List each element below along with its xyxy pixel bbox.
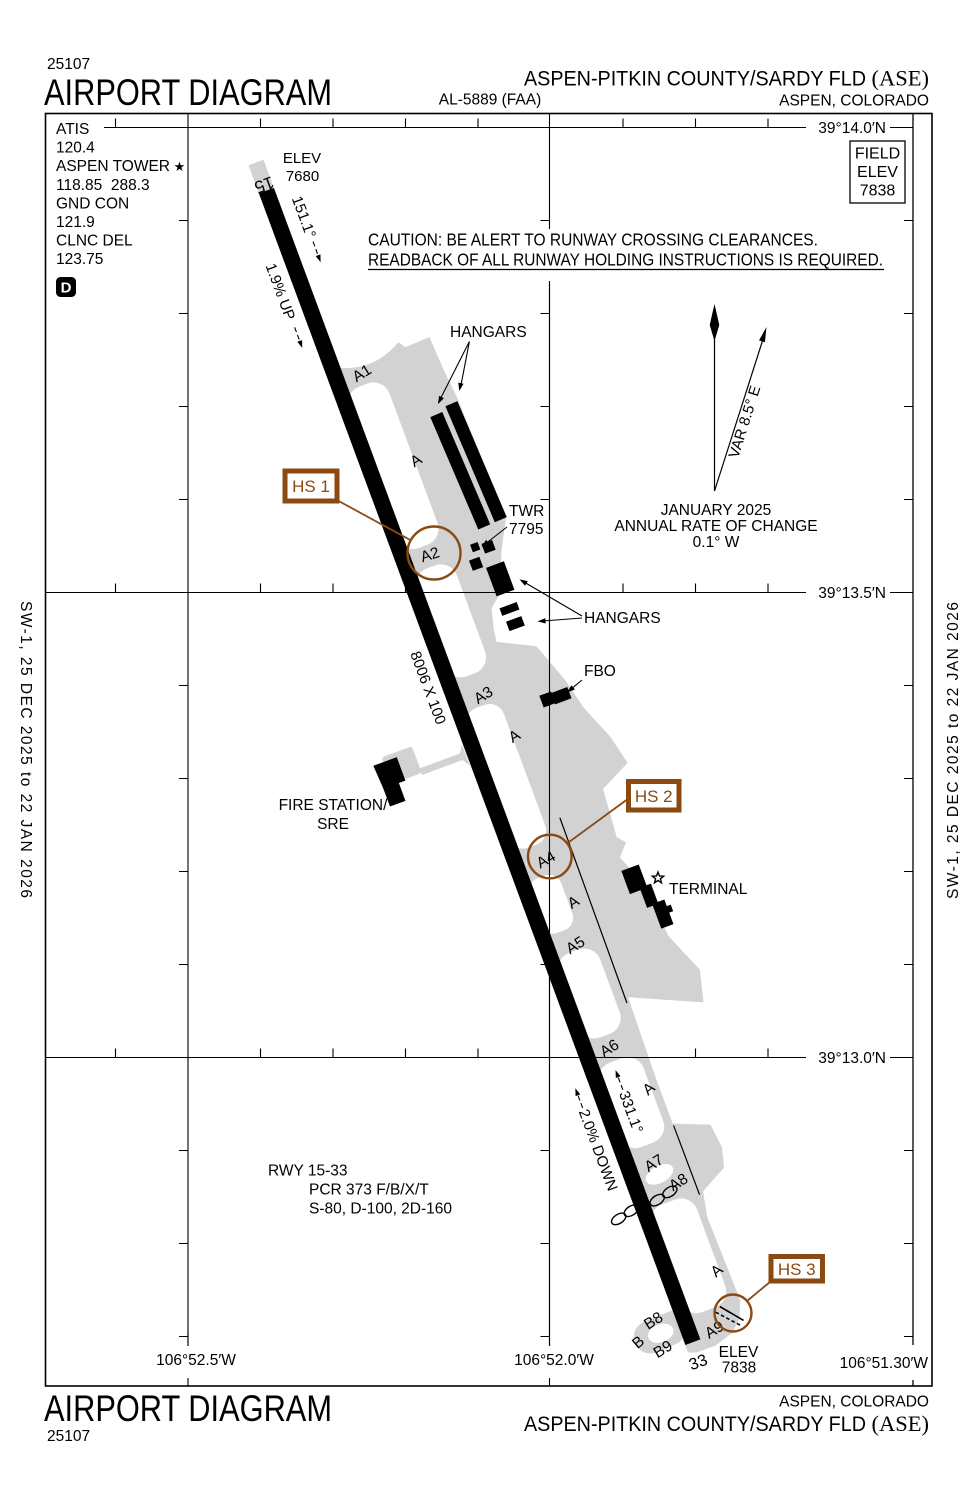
svg-text:FBO: FBO bbox=[584, 663, 616, 680]
svg-text:ASPEN-PITKIN COUNTY/SARDY FLD: ASPEN-PITKIN COUNTY/SARDY FLD bbox=[524, 1413, 866, 1436]
svg-text:D: D bbox=[61, 280, 72, 297]
svg-text:ELEV: ELEV bbox=[857, 164, 898, 181]
svg-text:123.75: 123.75 bbox=[56, 251, 103, 268]
svg-text:121.9: 121.9 bbox=[56, 214, 95, 231]
svg-text:7680: 7680 bbox=[286, 168, 319, 185]
svg-text:(ASE): (ASE) bbox=[872, 1411, 930, 1436]
svg-text:HS 2: HS 2 bbox=[635, 787, 673, 806]
svg-text:AIRPORT DIAGRAM: AIRPORT DIAGRAM bbox=[44, 72, 332, 113]
svg-text:RWY 15-33: RWY 15-33 bbox=[268, 1163, 348, 1180]
svg-text:FIRE STATION/: FIRE STATION/ bbox=[279, 797, 388, 814]
svg-text:7838: 7838 bbox=[860, 183, 896, 200]
svg-text:7838: 7838 bbox=[722, 1360, 756, 1377]
svg-text:HANGARS: HANGARS bbox=[450, 324, 527, 341]
svg-text:SW-1, 25 DEC 2025 to 22 JAN 20: SW-1, 25 DEC 2025 to 22 JAN 2026 bbox=[945, 602, 962, 899]
svg-text:(ASE): (ASE) bbox=[872, 66, 930, 91]
svg-text:ELEV: ELEV bbox=[283, 150, 321, 167]
svg-text:CAUTION: BE ALERT TO RUNWAY CR: CAUTION: BE ALERT TO RUNWAY CROSSING CLE… bbox=[368, 230, 818, 250]
svg-text:39°14.0′N: 39°14.0′N bbox=[818, 120, 886, 137]
svg-text:ASPEN-PITKIN COUNTY/SARDY FLD: ASPEN-PITKIN COUNTY/SARDY FLD bbox=[524, 68, 866, 91]
svg-text:AIRPORT DIAGRAM: AIRPORT DIAGRAM bbox=[44, 1388, 332, 1429]
svg-text:106°52.5′W: 106°52.5′W bbox=[156, 1352, 236, 1369]
svg-text:READBACK OF ALL RUNWAY HOLDING: READBACK OF ALL RUNWAY HOLDING INSTRUCTI… bbox=[368, 250, 883, 270]
svg-text:120.4: 120.4 bbox=[56, 140, 95, 157]
svg-text:ASPEN TOWER ★: ASPEN TOWER ★ bbox=[56, 158, 185, 175]
svg-text:ATIS: ATIS bbox=[56, 121, 89, 138]
svg-text:HANGARS: HANGARS bbox=[584, 610, 661, 627]
svg-text:TERMINAL: TERMINAL bbox=[669, 881, 748, 898]
svg-text:39°13.5′N: 39°13.5′N bbox=[818, 585, 886, 602]
svg-text:ANNUAL RATE OF CHANGE: ANNUAL RATE OF CHANGE bbox=[614, 518, 817, 535]
svg-text:FIELD: FIELD bbox=[855, 146, 900, 163]
svg-text:SW-1, 25 DEC 2025 to 22 JAN 20: SW-1, 25 DEC 2025 to 22 JAN 2026 bbox=[17, 601, 34, 898]
svg-text:25107: 25107 bbox=[47, 1428, 90, 1445]
svg-text:ASPEN, COLORADO: ASPEN, COLORADO bbox=[779, 1394, 929, 1411]
svg-text:SRE: SRE bbox=[317, 816, 349, 833]
svg-text:HS 3: HS 3 bbox=[778, 1260, 816, 1279]
svg-text:0.1° W: 0.1° W bbox=[693, 534, 740, 551]
svg-text:S-80, D-100, 2D-160: S-80, D-100, 2D-160 bbox=[309, 1201, 452, 1218]
svg-text:106°52.0′W: 106°52.0′W bbox=[514, 1352, 594, 1369]
svg-text:106°51.30′W: 106°51.30′W bbox=[840, 1355, 929, 1372]
svg-text:ASPEN, COLORADO: ASPEN, COLORADO bbox=[779, 93, 929, 110]
svg-text:7795: 7795 bbox=[509, 521, 543, 538]
svg-text:PCR 373 F/B/X/T: PCR 373 F/B/X/T bbox=[309, 1182, 429, 1199]
svg-text:ELEV: ELEV bbox=[719, 1344, 759, 1361]
svg-text:118.85 288.3: 118.85 288.3 bbox=[56, 177, 150, 194]
svg-text:HS 1: HS 1 bbox=[292, 477, 330, 496]
svg-text:25107: 25107 bbox=[47, 56, 90, 73]
svg-text:TWR: TWR bbox=[509, 503, 544, 520]
svg-text:AL-5889 (FAA): AL-5889 (FAA) bbox=[439, 92, 542, 109]
svg-text:JANUARY 2025: JANUARY 2025 bbox=[661, 502, 772, 519]
svg-text:GND CON: GND CON bbox=[56, 195, 129, 212]
svg-text:39°13.0′N: 39°13.0′N bbox=[818, 1050, 886, 1067]
svg-text:CLNC DEL: CLNC DEL bbox=[56, 233, 133, 250]
